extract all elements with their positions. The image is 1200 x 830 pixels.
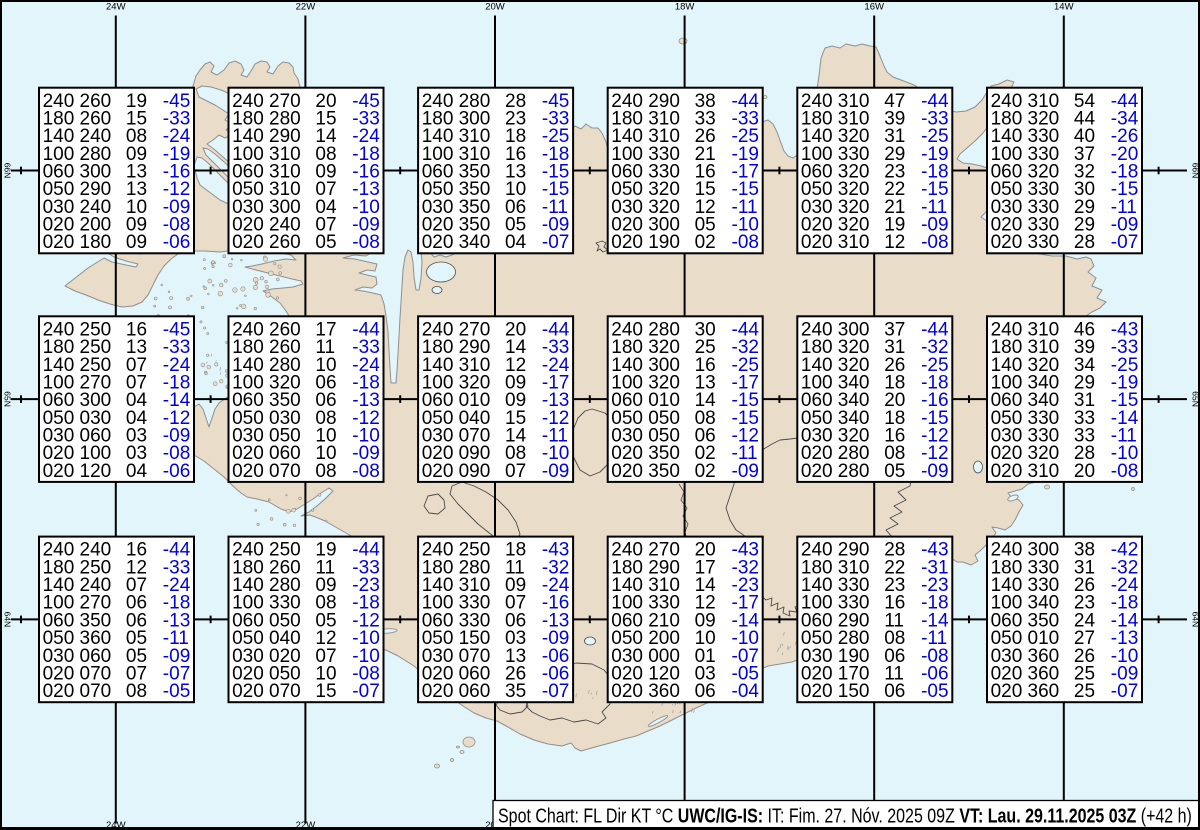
svg-text:66N: 66N (3, 163, 13, 179)
svg-text:64N: 64N (3, 612, 13, 628)
svg-text:14W: 14W (1054, 2, 1074, 13)
svg-text:65N: 65N (3, 391, 13, 407)
svg-text:Spot Chart: FL Dir KT °C UWC/I: Spot Chart: FL Dir KT °C UWC/IG-IS: IT: … (498, 805, 1192, 827)
svg-text:20W: 20W (485, 2, 505, 13)
svg-text:24W: 24W (106, 2, 126, 13)
svg-text:16W: 16W (864, 2, 884, 13)
svg-text:18W: 18W (675, 2, 695, 13)
svg-text:22W: 22W (296, 2, 316, 13)
